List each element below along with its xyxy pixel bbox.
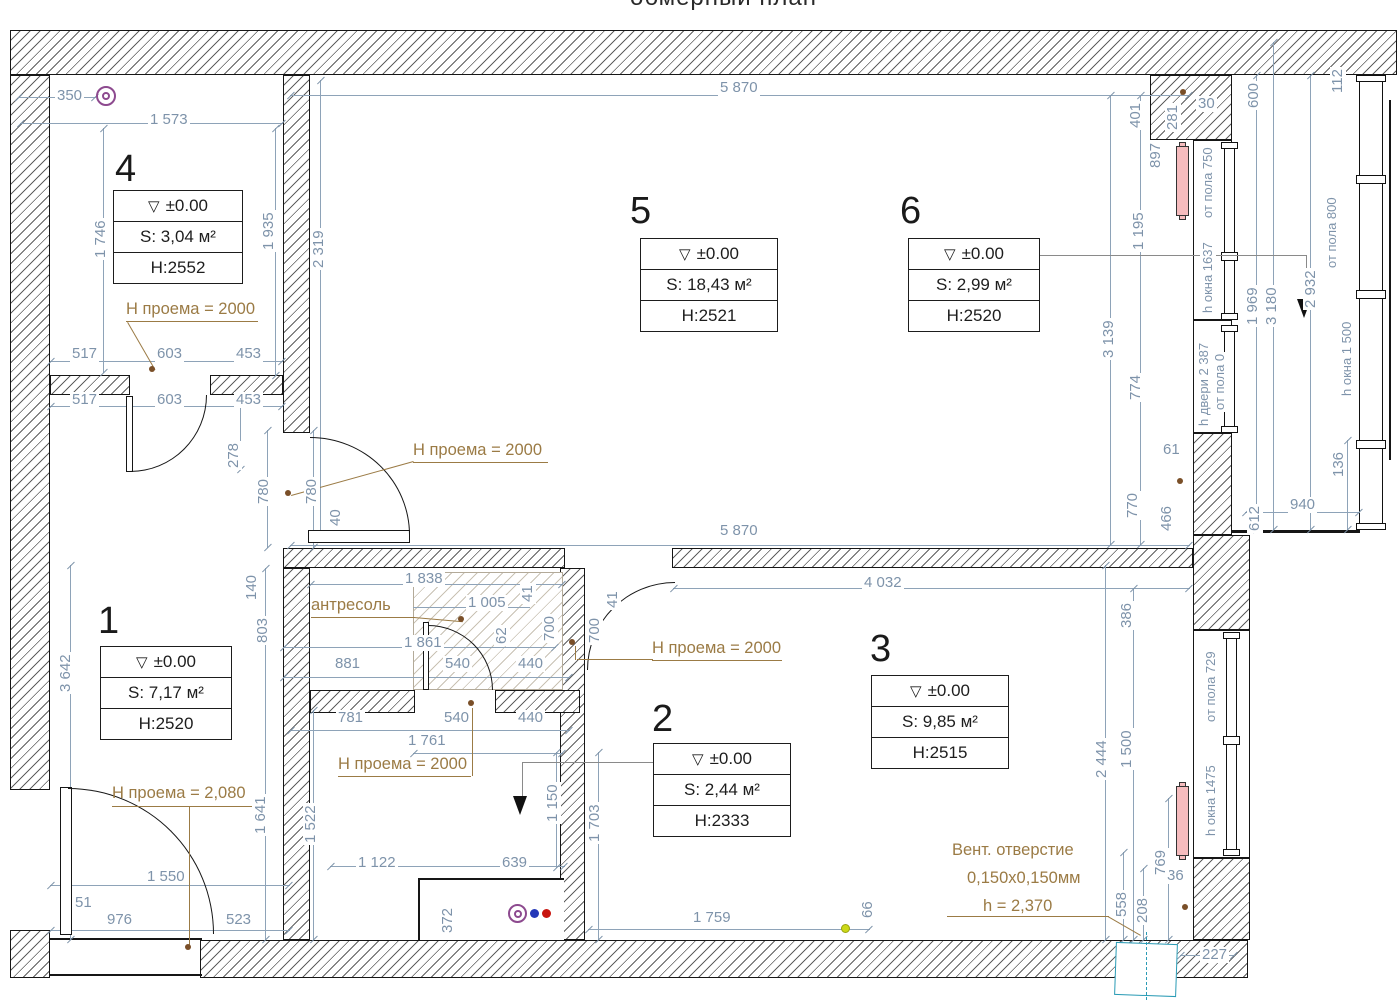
wall-right-lower-a	[1193, 535, 1250, 630]
wall-bottom	[200, 940, 1248, 978]
dim-label: 603	[155, 346, 184, 362]
label-leader	[126, 321, 258, 322]
dim-line	[290, 545, 1190, 546]
wall-corner-top-right	[1150, 75, 1232, 140]
dim-label: 61	[1161, 442, 1182, 458]
dim-label: 440	[516, 656, 545, 672]
label-leader	[112, 806, 252, 807]
room6-height: H:2520	[909, 300, 1039, 331]
dim-line	[275, 128, 276, 376]
dim-label: 780	[256, 477, 272, 506]
floor-plan-canvas: обмерный план	[0, 0, 1397, 1000]
dim-line	[1347, 440, 1348, 530]
dim-label: 281	[1165, 103, 1181, 132]
balcony-glazing	[1359, 75, 1383, 530]
room-number-1: 1	[98, 600, 119, 643]
dim-label: 540	[442, 710, 471, 726]
dim-label: 30	[1196, 96, 1217, 112]
room2-info-box: ▽±0.00 S: 2,44 м² H:2333	[653, 743, 791, 837]
room5-area: S: 18,43 м²	[641, 269, 777, 300]
antresol-label: антресоль	[311, 596, 391, 615]
wall-room4-right	[283, 75, 310, 433]
opening-height-label-room2: Н проема = 2000	[338, 755, 467, 774]
hot-water-pipe-icon	[542, 909, 551, 918]
radiator	[1176, 146, 1189, 216]
wall-top	[10, 30, 1397, 75]
dim-label: 612	[1247, 504, 1263, 533]
dim-label: 350	[55, 88, 84, 104]
label-leader	[472, 708, 473, 776]
radiator-cap	[1179, 142, 1186, 147]
label-leader	[575, 646, 576, 660]
window-mullion	[1221, 252, 1238, 261]
dim-line	[290, 730, 570, 731]
room-number-3: 3	[870, 628, 891, 671]
dim-label: 770	[1125, 491, 1141, 520]
room-number-6: 6	[900, 190, 921, 233]
dim-label: 466	[1159, 504, 1175, 533]
window-height-label: h окна 1475	[1203, 763, 1219, 838]
door-sill-label: от пола 0	[1212, 352, 1228, 412]
dim-label: 372	[440, 906, 456, 935]
dim-label: 781	[336, 710, 365, 726]
dim-line	[413, 753, 563, 754]
wall-right-lower-b	[1193, 858, 1250, 940]
dim-label: 208	[1135, 896, 1151, 925]
dim-label: 140	[244, 573, 260, 602]
dim-label: 1 195	[1131, 210, 1147, 252]
dim-label: 1 759	[691, 910, 733, 926]
glazing-mullion	[1356, 175, 1386, 184]
dim-label: 600	[1246, 81, 1262, 110]
vent-label-line2: 0,150х0,150мм	[967, 869, 1081, 888]
room5-height: H:2521	[641, 300, 777, 331]
dim-label: 1 641	[253, 794, 269, 836]
threshold-line	[50, 974, 202, 976]
section-leader	[1040, 255, 1307, 256]
dim-label: 881	[333, 656, 362, 672]
label-leader	[413, 462, 548, 463]
dim-label: 3 180	[1264, 285, 1280, 327]
dim-label: 1 500	[1119, 728, 1135, 770]
radiator-cap	[1179, 782, 1186, 787]
leader-dot	[185, 944, 191, 950]
room3-height: H:2515	[872, 737, 1008, 768]
dim-label: 517	[70, 346, 99, 362]
dim-label: 523	[224, 912, 253, 928]
dim-label: 3 139	[1101, 318, 1117, 360]
dim-label: 780	[304, 477, 320, 506]
dim-line	[588, 929, 870, 930]
balcony-window-height-label: h окна 1 500	[1339, 320, 1355, 398]
window-mullion	[1223, 849, 1240, 856]
riser-pipe-icon	[514, 910, 522, 918]
dim-label: 51	[73, 895, 94, 911]
dim-label: 639	[500, 855, 529, 871]
entry-door-swing-arc	[68, 788, 214, 934]
dim-label: 540	[443, 656, 472, 672]
glazing-mullion	[1356, 75, 1386, 82]
dim-label: 40	[328, 507, 344, 528]
dim-label: 1 522	[303, 803, 319, 845]
dim-label: 1 703	[587, 802, 603, 844]
room2-height: H:2333	[654, 805, 790, 836]
window-mullion	[1221, 313, 1238, 320]
dim-label: 769	[1153, 848, 1169, 877]
leader-dot	[1177, 478, 1183, 484]
dim-label: 1 861	[402, 635, 444, 651]
level-mark-icon: ▽	[136, 648, 148, 677]
room3-info-box: ▽±0.00 S: 9,85 м² H:2515	[871, 675, 1009, 769]
room1-area: S: 7,17 м²	[101, 677, 231, 708]
dim-label: 976	[105, 912, 134, 928]
label-leader	[947, 916, 1109, 917]
dim-label: 517	[70, 392, 99, 408]
vent-axis-line	[1146, 932, 1147, 1000]
wall-left-lower	[10, 930, 50, 978]
dim-label: 4 032	[862, 575, 904, 591]
leader-dot	[569, 639, 575, 645]
section-leader	[523, 762, 654, 763]
dim-label: 1 838	[403, 571, 445, 587]
radiator-cap	[1179, 215, 1186, 220]
leader-dot	[458, 616, 464, 622]
leader-dot	[1182, 904, 1188, 910]
glazing-mullion	[1356, 290, 1386, 299]
dim-label: 41	[605, 589, 621, 610]
dim-line	[1140, 95, 1141, 545]
level-mark-icon: ▽	[679, 240, 691, 269]
dim-label: 2 932	[1303, 268, 1319, 310]
vent-label-line1: Вент. отверстие	[952, 841, 1074, 860]
room-number-5: 5	[630, 190, 651, 233]
view-direction-arrow	[513, 796, 527, 815]
level-mark-icon: ▽	[944, 240, 956, 269]
dim-label: 603	[155, 392, 184, 408]
dim-label: 2 319	[311, 228, 327, 270]
dim-label: 2 444	[1094, 738, 1110, 780]
dim-label: 1 969	[1245, 285, 1261, 327]
radiator	[1176, 786, 1189, 856]
dim-label: 136	[1331, 450, 1347, 479]
dim-label: 700	[542, 614, 558, 643]
dim-label: 1 150	[545, 782, 561, 824]
room2-area: S: 2,44 м²	[654, 774, 790, 805]
window-mullion	[1223, 736, 1240, 745]
leader-dot	[1180, 89, 1186, 95]
dim-label: 700	[587, 616, 603, 645]
room3-elevation: ▽±0.00	[872, 676, 1008, 706]
dim-label: 66	[860, 899, 876, 920]
vent-label-line3: h = 2,370	[983, 897, 1052, 916]
dim-label: 1 005	[466, 595, 508, 611]
opening-height-label-room4: Н проема = 2000	[126, 300, 255, 319]
dim-label: 1 573	[148, 112, 190, 128]
dim-label: 401	[1128, 101, 1144, 130]
wall-left-upper	[10, 75, 50, 790]
room4-area: S: 3,04 м²	[114, 221, 242, 252]
room5-elevation: ▽±0.00	[641, 239, 777, 269]
dim-label: 5 870	[718, 80, 760, 96]
dim-label: 774	[1128, 373, 1144, 402]
room1-info-box: ▽±0.00 S: 7,17 м² H:2520	[100, 646, 232, 740]
wall-balcony-pier	[1193, 433, 1232, 535]
door-mullion	[1221, 426, 1238, 433]
room1-elevation: ▽±0.00	[101, 647, 231, 677]
room6-elevation: ▽±0.00	[909, 239, 1039, 269]
section-leader	[522, 762, 523, 798]
dim-label: 112	[1330, 67, 1346, 95]
dim-label: 227	[1200, 947, 1229, 963]
label-leader	[189, 807, 190, 948]
balcony-window-sill-label: от пола 800	[1324, 195, 1340, 270]
dim-label: 386	[1119, 601, 1135, 630]
dim-label: 897	[1148, 141, 1164, 170]
dim-label: 278	[226, 441, 242, 470]
room6-info-box: ▽±0.00 S: 2,99 м² H:2520	[908, 238, 1040, 332]
window-height-label: h окна 1637	[1200, 240, 1216, 315]
wall-mid-horizontal-left	[283, 548, 565, 568]
riser-pipe-icon	[102, 92, 110, 100]
opening-height-label-room3: Н проема = 2000	[652, 639, 781, 658]
dim-label: 1 935	[261, 210, 277, 252]
opening-height-label-room5: Н проема = 2000	[413, 441, 542, 460]
label-leader	[577, 659, 653, 660]
glazing-mullion	[1356, 523, 1386, 530]
level-mark-icon: ▽	[148, 192, 160, 221]
leader-dot	[468, 700, 474, 706]
window-mullion	[1221, 142, 1238, 149]
dim-label: 1 761	[406, 733, 448, 749]
window-frame-top	[1224, 142, 1235, 320]
label-leader	[338, 776, 471, 777]
dim-label: 940	[1288, 497, 1317, 513]
leader-dot	[149, 366, 155, 372]
window-sill-height-label: от пола 750	[1200, 145, 1216, 220]
dim-line	[598, 752, 599, 940]
room4-info-box: ▽±0.00 S: 3,04 м² H:2552	[113, 190, 243, 284]
leader-dot	[285, 490, 291, 496]
dim-label: 1 122	[356, 855, 398, 871]
dim-label: 803	[255, 616, 271, 645]
dim-label: 3 642	[58, 652, 74, 694]
room2-elevation: ▽±0.00	[654, 744, 790, 774]
room3-area: S: 9,85 м²	[872, 706, 1008, 737]
door-height-label: h двери 2 387	[1196, 341, 1212, 428]
room4-elevation: ▽±0.00	[114, 191, 242, 221]
dim-label: 5 870	[718, 523, 760, 539]
glazing-outer-line	[1389, 100, 1391, 460]
label-leader	[127, 322, 156, 370]
cold-water-pipe-icon	[530, 909, 539, 918]
radiator-cap	[1179, 855, 1186, 860]
room-number-2: 2	[652, 698, 673, 741]
label-leader	[311, 617, 415, 618]
dim-label: 41	[520, 583, 536, 604]
dim-label: 1 746	[93, 218, 109, 260]
dim-label: 453	[234, 346, 263, 362]
window-opening-bottom-right	[1193, 630, 1250, 858]
level-mark-icon: ▽	[692, 745, 704, 774]
dim-label: 453	[234, 392, 263, 408]
window-mullion	[1223, 632, 1240, 639]
room1-height: H:2520	[101, 708, 231, 739]
glazing-mullion	[1356, 440, 1386, 449]
door-mullion	[1221, 325, 1238, 332]
drawing-title: обмерный план	[630, 0, 817, 12]
window-sill-height-label: от пола 729	[1203, 649, 1219, 724]
dim-label: 440	[516, 710, 545, 726]
dim-line	[673, 588, 1190, 589]
label-leader	[652, 660, 782, 661]
room4-height: H:2552	[114, 252, 242, 283]
level-mark-icon: ▽	[910, 677, 922, 706]
opening-height-label-entry: Н проема = 2,080	[112, 784, 246, 803]
marker-dot-yellow	[841, 924, 850, 933]
room5-info-box: ▽±0.00 S: 18,43 м² H:2521	[640, 238, 778, 332]
dim-label: 62	[494, 625, 510, 646]
room-number-4: 4	[115, 148, 136, 191]
room6-area: S: 2,99 м²	[909, 269, 1039, 300]
dim-label: 558	[1114, 890, 1130, 919]
wall-mid-horizontal-right	[672, 548, 1193, 568]
dim-label: 1 550	[145, 869, 187, 885]
